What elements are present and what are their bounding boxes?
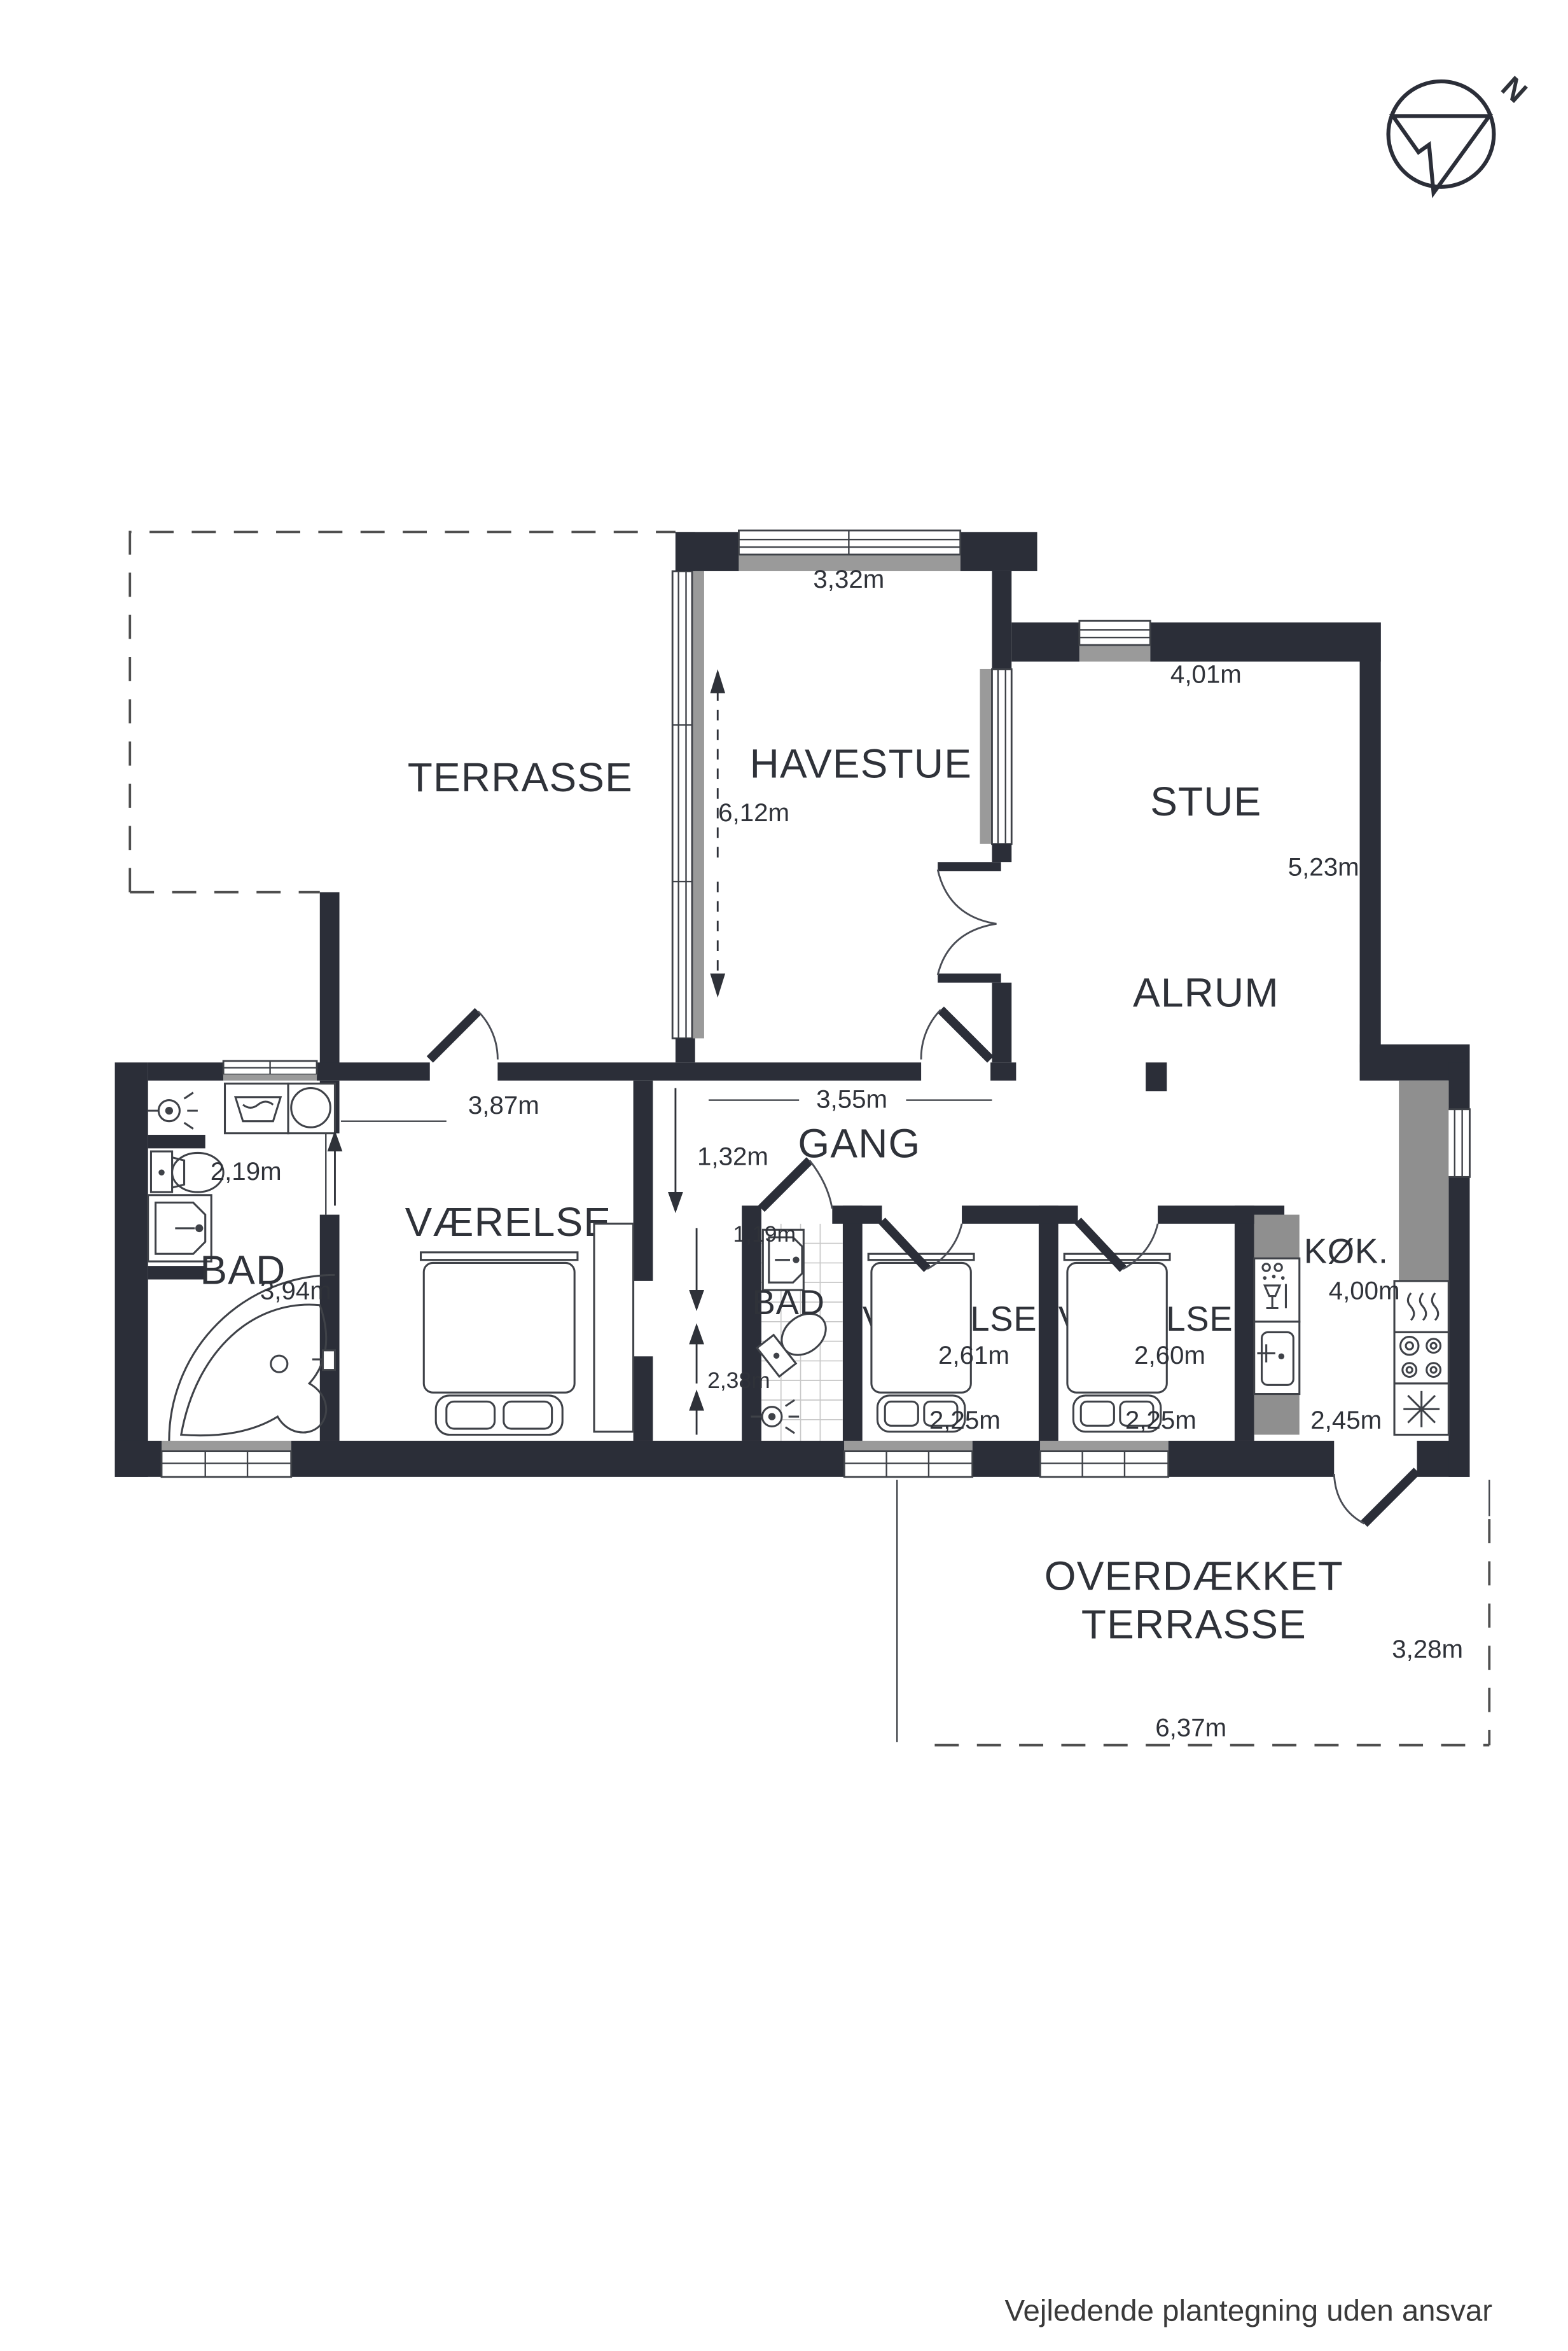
door-bad-midt (761, 1160, 832, 1209)
dishwasher-icon (1254, 1258, 1300, 1322)
double-door-havestue-stue (938, 866, 1001, 978)
room-label-koekken: KØK. (1304, 1231, 1389, 1270)
bed-icon-vaerelse-vest (421, 1252, 578, 1435)
floor-plan-drawing: N TERRASSE HAVESTUE 3,32m (0, 0, 1568, 2351)
shower-icon (148, 1093, 198, 1129)
oven-icon (1394, 1281, 1448, 1333)
fireplace-icon (1146, 1062, 1167, 1091)
dim-havestue-depth-arrows (710, 669, 725, 997)
window-bad-vest-south (162, 1441, 291, 1477)
washing-machine-icon (225, 1083, 289, 1133)
dim-gang-width: 3,55m (816, 1085, 887, 1113)
entry-arrow (328, 1130, 343, 1205)
dim-bad-midt-depth: 2,38m (707, 1368, 770, 1393)
dim-bad-midt-width: 1,19m (733, 1221, 796, 1247)
room-label-bad-midt: BAD (753, 1283, 825, 1322)
room-label-overdaekket-line1: OVERDÆKKET (1044, 1553, 1343, 1599)
disclaimer-text: Vejledende plantegning uden ansvar (1004, 2294, 1492, 2328)
dim-stue-width: 4,01m (1170, 660, 1242, 688)
door-vaerelse-oest (1078, 1221, 1158, 1269)
dim-stue-depth: 5,23m (1288, 853, 1359, 882)
stove-icon (1394, 1332, 1448, 1384)
dim-overdaekket-width: 6,37m (1155, 1713, 1226, 1742)
window-vaerelse-oest-south (1040, 1441, 1168, 1477)
door-terrasse-vaerelse (430, 1011, 498, 1060)
room-label-stue: STUE (1150, 779, 1261, 824)
door-koekken-terrasse (1334, 1471, 1417, 1523)
door-vaerelse-midt (882, 1221, 962, 1269)
room-label-gang: GANG (798, 1121, 920, 1167)
window-bad-vest-north (223, 1061, 317, 1081)
compass-north-label: N (1495, 70, 1534, 109)
dim-vaerelse-midt-bed: 2,25m (929, 1406, 1001, 1434)
dim-koekken-width: 2,45m (1310, 1406, 1382, 1434)
basin-icon (288, 1083, 335, 1133)
window-vaerelse-midt-south (844, 1441, 972, 1477)
door-gang-havestue (921, 1009, 990, 1059)
dim-overdaekket-depth: 3,28m (1392, 1635, 1463, 1663)
dim-bad-vest-depth: 3,94m (260, 1276, 331, 1305)
freezer-icon (1394, 1384, 1448, 1435)
dim-vaerelse-midt-width: 2,61m (938, 1341, 1009, 1370)
dim-gang-passage: 1,32m (697, 1142, 768, 1170)
dim-havestue-depth: 6,12m (718, 798, 789, 827)
havestue-walls (672, 531, 1037, 1062)
terrasse-outline (130, 532, 676, 1070)
room-label-havestue: HAVESTUE (750, 741, 972, 787)
dim-vaerelse-oest-width: 2,60m (1134, 1341, 1205, 1370)
dim-gang-passage-arrow (668, 1088, 683, 1214)
room-label-vaerelse-vest: VÆRELSE (405, 1199, 612, 1245)
compass-icon: N (1389, 70, 1534, 193)
dim-bad-vest-width: 2,19m (211, 1157, 282, 1186)
dim-koekken-depth: 4,00m (1329, 1276, 1400, 1305)
wardrobe-icon (594, 1224, 634, 1432)
dim-vaerelse-oest-bed: 2,25m (1125, 1406, 1197, 1434)
floor-plan-page: N TERRASSE HAVESTUE 3,32m (0, 0, 1568, 2351)
hallway-arrows (689, 1228, 704, 1435)
dim-vaerelse-vest-width: 3,87m (468, 1091, 539, 1120)
room-label-terrasse: TERRASSE (408, 754, 633, 800)
kitchen-sink-icon (1254, 1322, 1300, 1394)
dim-havestue-width: 3,32m (813, 565, 884, 593)
room-label-alrum: ALRUM (1133, 970, 1279, 1016)
room-label-overdaekket-line2: TERRASSE (1081, 1601, 1307, 1647)
window-koekken-east (1447, 1109, 1470, 1177)
